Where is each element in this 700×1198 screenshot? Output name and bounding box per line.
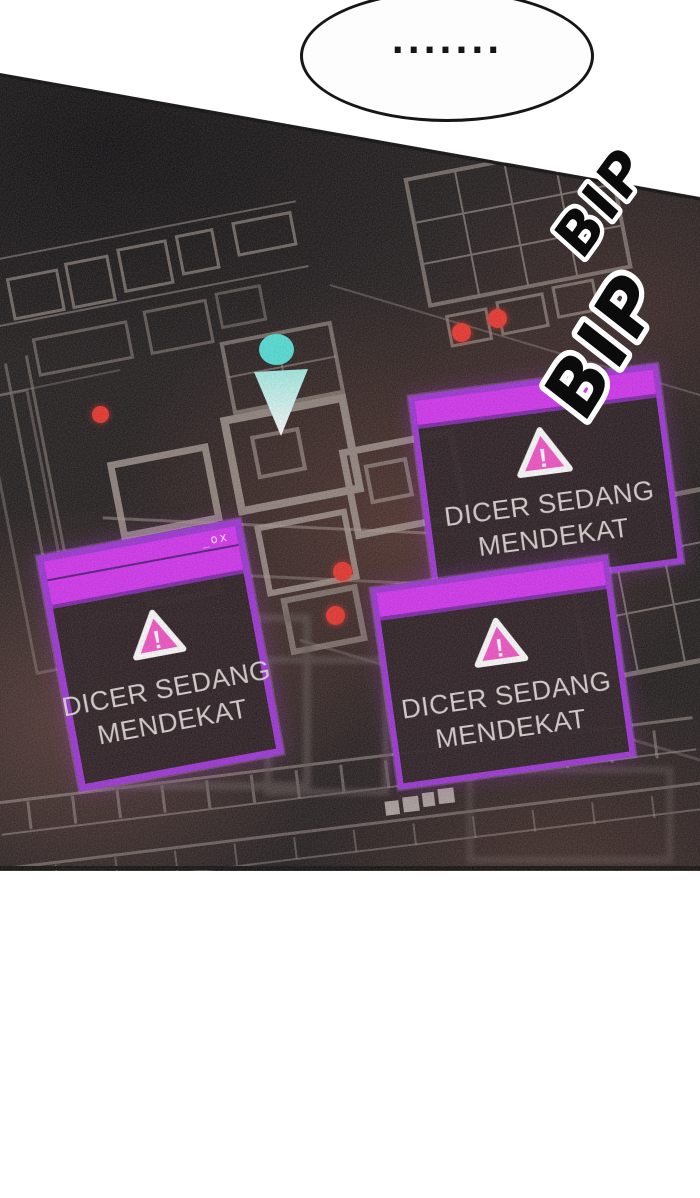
enemy-dot bbox=[92, 406, 109, 423]
sfx-bip-2: BIP bbox=[518, 255, 700, 425]
warning-triangle-icon: ! bbox=[508, 419, 577, 483]
player-marker bbox=[248, 332, 318, 444]
warning-triangle-icon: ! bbox=[465, 611, 532, 673]
enemy-dot bbox=[452, 323, 471, 342]
sfx-bip-2-text: BIP bbox=[530, 253, 679, 436]
sfx-bip-1: BIP bbox=[525, 112, 695, 272]
window-controls-label[interactable]: _ox bbox=[200, 530, 230, 549]
enemy-dot bbox=[333, 562, 352, 581]
enemy-dot bbox=[326, 606, 345, 625]
alert-window-bottom-right[interactable]: ! DICER SEDANG MENDEKAT bbox=[370, 555, 636, 790]
player-pointer-icon bbox=[248, 368, 310, 440]
sfx-bip-1-text: BIP bbox=[544, 133, 661, 271]
comic-panel: ! DICER SEDANG MENDEKAT _ox bbox=[0, 0, 700, 1198]
speech-bubble-text: ....... bbox=[391, 22, 502, 62]
speech-bubble: ....... bbox=[300, 0, 594, 122]
warning-triangle-icon: ! bbox=[122, 601, 191, 665]
enemy-dot bbox=[488, 309, 507, 328]
alert-window-bottom-left[interactable]: _ox ! DICER SEDANG MENDEKAT bbox=[36, 518, 284, 792]
player-head-icon bbox=[259, 334, 294, 365]
